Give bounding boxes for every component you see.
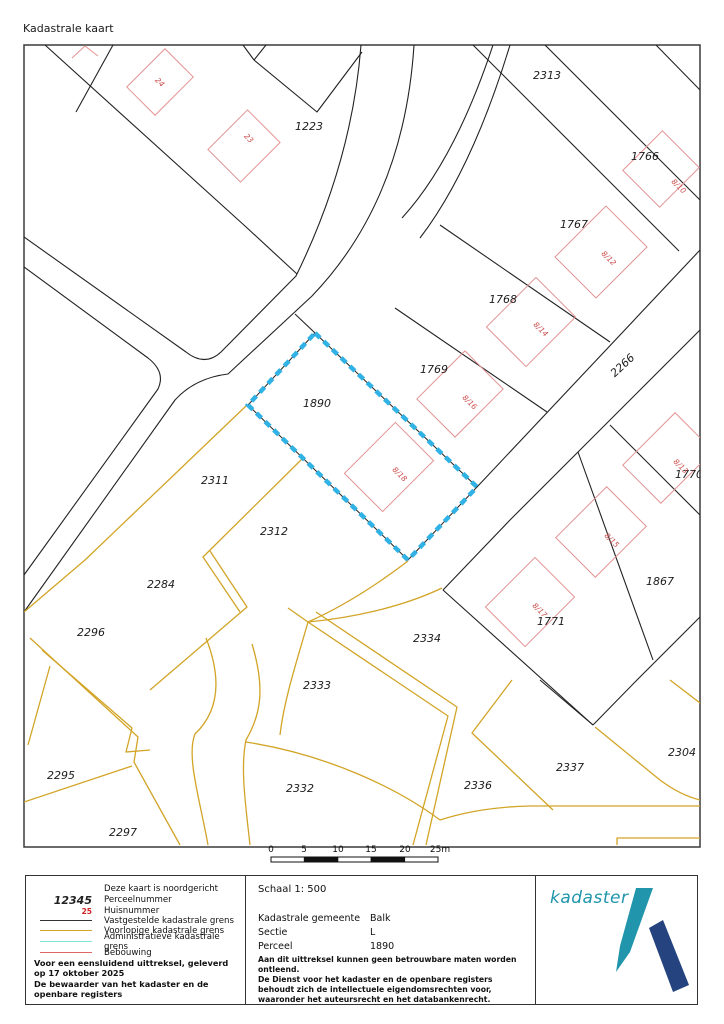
cadastral-map: 1223231317661767176817691890231123122284… <box>0 0 724 872</box>
detail-value: L <box>370 927 375 941</box>
parcel-number-label: 2311 <box>201 474 229 487</box>
extract-statement-line2: De bewaarder van het kadaster en de open… <box>34 979 239 1000</box>
disclaimer-line2: De Dienst voor het kadaster en de openba… <box>258 975 525 1005</box>
parcel-number-label: 2332 <box>286 782 314 795</box>
parcel-number-label: 2297 <box>109 826 137 839</box>
parcel-number-label: 1890 <box>303 397 331 410</box>
kadaster-logo-icon <box>594 880 689 1000</box>
legend-item-building: Bebouwing <box>34 948 239 958</box>
extract-statement: Voor een eensluidend uittreksel, gelever… <box>34 958 239 999</box>
legend-label: Bebouwing <box>104 948 152 958</box>
detail-row-sectie: Sectie L <box>258 927 525 941</box>
parcel-number-label: 1769 <box>420 363 448 376</box>
detail-label: Sectie <box>258 927 370 941</box>
legend-item-parcelnumber: 12345 Perceelnummer <box>34 894 239 906</box>
house-number-sample: 25 <box>34 907 104 916</box>
scale-title: Schaal 1: 500 <box>258 884 525 895</box>
scale-label-10: 10 <box>332 845 344 855</box>
parcel-number-label: 1767 <box>560 218 588 231</box>
parcel-number-label: 2312 <box>260 525 288 538</box>
established-boundary-swatch <box>40 920 92 921</box>
disclaimer-line1: Aan dit uittreksel kunnen geen betrouwba… <box>258 955 525 975</box>
legend-label: Huisnummer <box>104 906 159 916</box>
parcel-number-label: 2337 <box>556 761 584 774</box>
scale-label-20: 20 <box>399 845 411 855</box>
building-swatch <box>40 952 92 953</box>
parcel-number-label: 2284 <box>147 578 175 591</box>
legend-label: Vastgestelde kadastrale grens <box>104 916 234 926</box>
detail-row-perceel: Perceel 1890 <box>258 941 525 955</box>
parcel-number-label: 1867 <box>646 575 674 588</box>
scale-label-5: 5 <box>301 845 307 855</box>
administrative-boundary-swatch <box>40 941 92 942</box>
scale-label-15: 15 <box>365 845 376 855</box>
legend-label: Perceelnummer <box>104 895 172 905</box>
parcel-number-label: 2295 <box>47 769 75 782</box>
parcel-number-sample: 12345 <box>34 894 104 907</box>
details-column: Schaal 1: 500 Kadastrale gemeente Balk S… <box>246 876 536 1004</box>
legend-column: Deze kaart is noordgericht 12345 Perceel… <box>26 876 246 1004</box>
parcel-number-label: 1768 <box>489 293 517 306</box>
north-note: Deze kaart is noordgericht <box>104 884 218 894</box>
map-canvas: 1223231317661767176817691890231123122284… <box>0 0 724 872</box>
kadastrale-kaart-page: Kadastrale kaart <box>0 0 724 1024</box>
disclaimer: Aan dit uittreksel kunnen geen betrouwba… <box>258 955 525 1005</box>
parcel-number-label: 2334 <box>413 632 441 645</box>
detail-label: Kadastrale gemeente <box>258 913 370 927</box>
parcel-number-label: 2336 <box>464 779 492 792</box>
parcel-number-label: 2304 <box>668 746 696 759</box>
legend-item-administrative-boundary: Administratieve kadastrale grens <box>34 936 239 948</box>
scale-label-0: 0 <box>268 845 274 855</box>
detail-label: Perceel <box>258 941 370 955</box>
detail-value: Balk <box>370 913 390 927</box>
detail-row-gemeente: Kadastrale gemeente Balk <box>258 913 525 927</box>
extract-statement-line1: Voor een eensluidend uittreksel, gelever… <box>34 958 239 979</box>
parcel-number-label: 1766 <box>631 150 659 163</box>
parcel-number-label: 1223 <box>295 120 323 133</box>
map-frame <box>24 45 700 847</box>
legend-north-note-row: Deze kaart is noordgericht <box>34 884 239 894</box>
parcel-number-label: 2313 <box>533 69 561 82</box>
logo-column: kadaster <box>536 876 697 1004</box>
info-panel: Deze kaart is noordgericht 12345 Perceel… <box>25 875 698 1005</box>
parcel-number-label: 2296 <box>77 626 105 639</box>
parcel-number-label: 2333 <box>303 679 331 692</box>
legend-item-housenumber: 25 Huisnummer <box>34 906 239 916</box>
scale-label-25m: 25m <box>430 845 450 855</box>
legend-item-established-boundary: Vastgestelde kadastrale grens <box>34 916 239 926</box>
detail-value: 1890 <box>370 941 394 955</box>
provisional-boundary-swatch <box>40 930 92 931</box>
